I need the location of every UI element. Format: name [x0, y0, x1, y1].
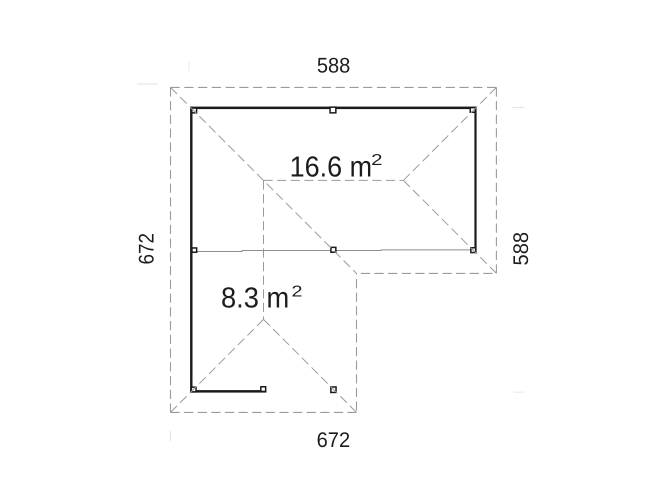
- svg-text:672: 672: [317, 429, 351, 452]
- svg-text:588: 588: [510, 232, 533, 266]
- svg-text:2: 2: [292, 283, 303, 300]
- svg-text:588: 588: [317, 54, 351, 77]
- svg-text:672: 672: [135, 233, 158, 264]
- svg-text:2: 2: [371, 152, 382, 169]
- svg-text:16.6 m: 16.6 m: [290, 151, 373, 183]
- svg-text:8.3 m: 8.3 m: [221, 283, 289, 315]
